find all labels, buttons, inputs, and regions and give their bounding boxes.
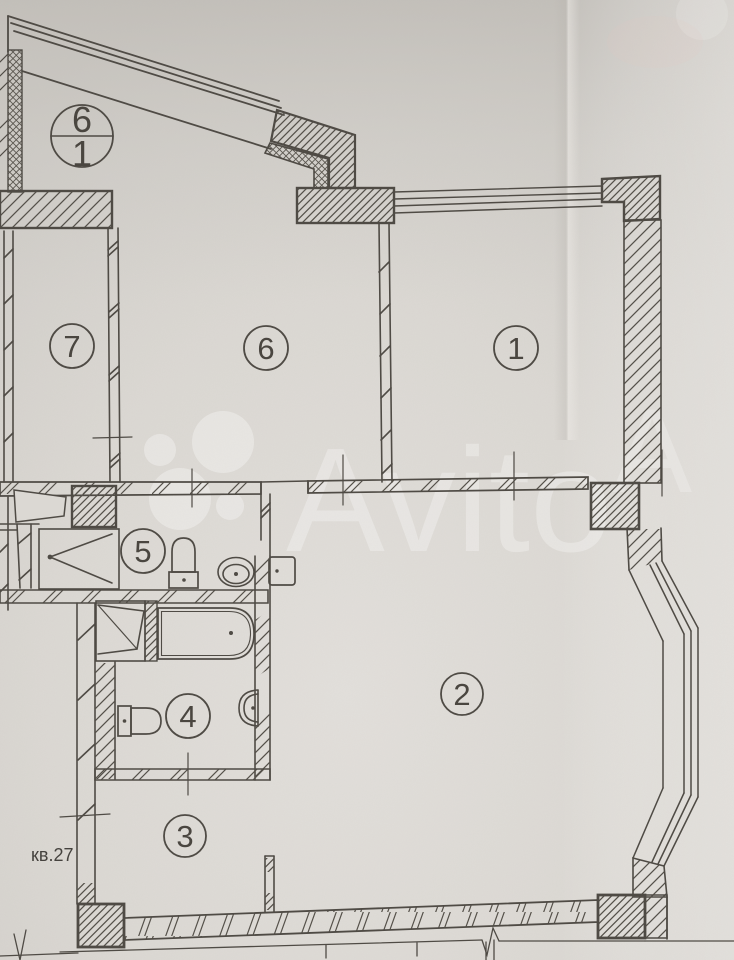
svg-text:Avito: Avito	[286, 418, 612, 583]
svg-text:3: 3	[176, 819, 193, 854]
svg-text:5: 5	[134, 534, 151, 569]
svg-text:1: 1	[507, 331, 524, 366]
svg-text:7: 7	[63, 329, 80, 364]
svg-text:1: 1	[72, 133, 92, 174]
svg-text:кв.27: кв.27	[31, 845, 73, 865]
svg-text:6: 6	[257, 331, 274, 366]
svg-text:4: 4	[179, 699, 196, 734]
svg-text:2: 2	[453, 677, 470, 712]
